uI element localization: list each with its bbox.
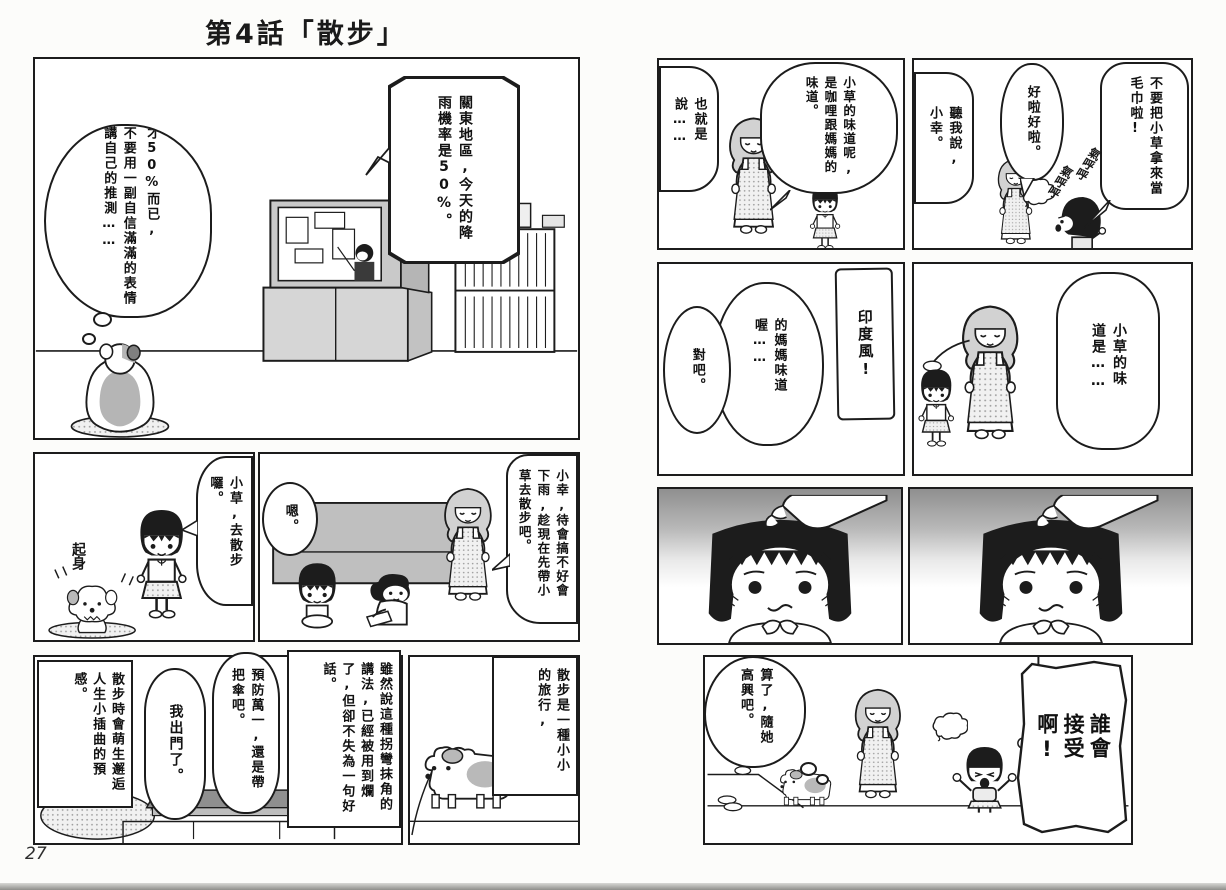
thought-bubble-dog: 才50%而已, 不要用一副自信滿滿的表情講自己的推測…… [44,124,212,318]
speech-bubble-no-towel: 不要把小草拿來當毛巾啦! [1100,62,1189,210]
girl-being-petted [919,369,954,446]
girl-ok-text: 嗯。 [280,504,300,534]
steam-puff [933,713,968,741]
dog-thought-line1: 才50%而已, [142,126,162,316]
girl-listening [810,185,839,248]
girl-face-closeup [980,495,1158,643]
tv-bubble-tail [362,145,392,179]
motion-marks [55,567,133,586]
speech-bubble-going-out: 我出門了。 [144,668,206,820]
thought-trail-circle [82,333,96,345]
shout-text: 誰會接受啊! [1034,713,1113,783]
invite-bubble-tail [182,518,198,538]
okay-tail [1020,178,1036,198]
speech-bubble-mom-advice: 小幸,待會搞不好會下雨,趁現在先帶小草去散步吧。 [506,454,578,624]
manga-page-spread: 第4話「散步」 [0,0,1226,890]
umbrella-text: 預防萬一,還是帶把傘吧。 [227,668,266,798]
scan-shadow-bottom [0,883,1226,890]
speech-bubble-in-other-words: 也就是說…… [659,66,719,192]
india-text: 印度風! [853,308,877,379]
speech-bubble-okay: 好啦好啦。 [1000,63,1064,181]
thought-trail-circle [800,762,817,776]
smell-is-text: 小草的味道是…… [1087,323,1129,399]
mom-resigned [856,690,900,798]
no-towel-text: 不要把小草拿來當毛巾啦! [1125,76,1164,196]
panel-headpat-1 [657,487,903,645]
speech-bubble-right: 對吧。 [663,306,731,434]
dog-thought-line2: 不要用一副自信滿滿的表情講自己的推測…… [99,126,138,316]
no-towel-tail [1084,200,1112,230]
leash [412,772,432,835]
tv-forecast-text: 關東地區,今天的降雨機率是50%。 [433,95,475,245]
page-title: 第4話「散步」 [205,12,407,51]
mom-smell-text: 的媽媽味道喔…… [750,318,789,410]
headpat-art-1 [659,489,901,643]
mom-petting [963,307,1017,439]
advice-bubble-tail [492,552,510,572]
speech-bubble-india: 印度風! [835,268,896,421]
speech-bubble-umbrella: 預防萬一,還是帶把傘吧。 [212,652,280,814]
speech-bubble-smell-is: 小草的味道是…… [1056,272,1160,450]
curry-smell-tail [770,190,792,212]
speech-bubble-listen: 聽我說,小幸。 [914,72,974,204]
thought-bubble-mom: 算了,隨她高興吧。 [704,656,806,768]
mom-standing [445,489,491,600]
girl-invite-text: 小草,去散步囉。 [205,476,244,586]
caption-premonition: 散步時會萌生邂逅人生小插曲的預感。 [37,660,133,808]
dog-watching-tv [71,344,168,437]
caption-saying: 雖然說這種拐彎抹角的講法,已經被用到爛了,但卻不失為一句好話。 [287,650,401,828]
going-out-text: 我出門了。 [165,704,186,784]
girl-face-closeup [709,495,887,643]
caption-journey: 散步是一種小小的旅行, [492,656,578,796]
okay-text: 好啦好啦。 [1022,85,1042,160]
right-text: 對吧。 [687,348,707,393]
headpat-art-2 [910,489,1191,643]
girl-sachi [137,510,186,618]
listen-text: 聽我說,小幸。 [925,106,964,170]
speech-bubble-shout: 誰會接受啊! [1016,660,1130,836]
panel-headpat-2 [908,487,1193,645]
bowl [724,803,742,811]
thought-trail-circle [816,774,829,785]
speech-bubble-girl-invite: 小草,去散步囉。 [196,456,253,606]
speech-bubble-girl-ok: 嗯。 [262,482,318,556]
girl-sitting [299,563,336,627]
caption-journey-text: 散步是一種小小的旅行, [532,668,570,784]
in-other-words-text: 也就是說…… [670,97,709,161]
caption-saying-text: 雖然說這種拐彎抹角的講法,已經被用到爛了,但卻不失為一句好話。 [318,662,393,816]
page-number: 27 [25,844,47,864]
girl-shouting [953,747,1016,813]
sfx-get-up: 起身 [68,542,88,570]
mom-advice-text: 小幸,待會搞不好會下雨,趁現在先帶小草去散步吧。 [514,469,570,609]
thought-trail-circle [93,312,112,327]
speech-bubble-curry-smell: 小草的味道呢,是咖哩跟媽媽的味道。 [760,62,898,194]
mom-thought-text: 算了,隨她高興吧。 [736,668,775,756]
speech-bubble-tv-forecast: 關東地區,今天的降雨機率是50%。 [388,76,520,264]
caption-premonition-text: 散步時會萌生邂逅人生小插曲的預感。 [68,672,125,796]
curry-smell-text: 小草的味道呢,是咖哩跟媽媽的味道。 [801,76,857,180]
